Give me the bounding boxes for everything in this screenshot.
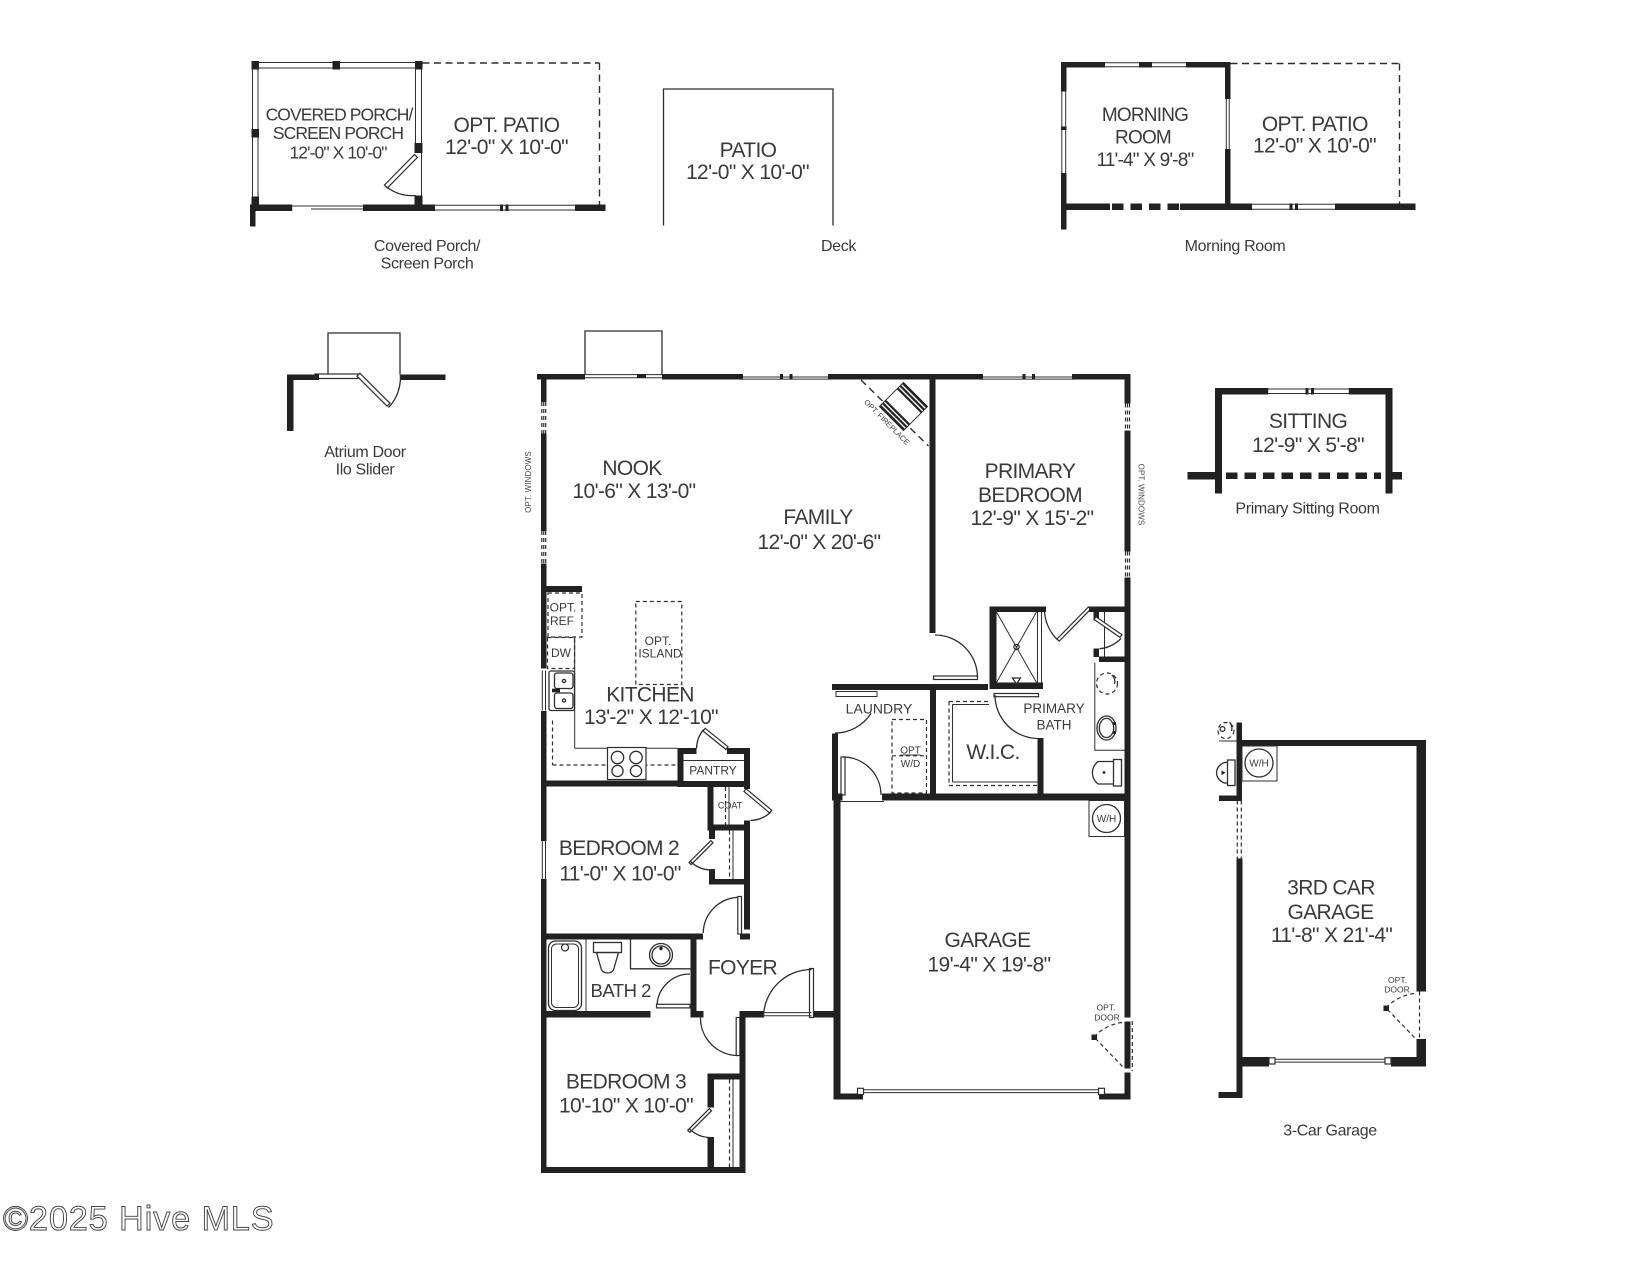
svg-text:LAUNDRY: LAUNDRY (846, 701, 913, 717)
svg-text:12'-0" X 10'-0": 12'-0" X 10'-0" (289, 142, 387, 162)
svg-text:Deck: Deck (821, 238, 857, 255)
svg-text:PANTRY: PANTRY (689, 764, 737, 778)
svg-text:Covered Porch/: Covered Porch/ (374, 238, 481, 255)
svg-text:W/H: W/H (1249, 759, 1268, 770)
svg-text:OPT. WINDOWS: OPT. WINDOWS (524, 451, 533, 513)
svg-text:BEDROOM: BEDROOM (978, 484, 1082, 507)
svg-text:COAT: COAT (718, 801, 743, 811)
svg-text:12'-0" X 10'-0": 12'-0" X 10'-0" (1253, 135, 1376, 158)
svg-text:NOOK: NOOK (602, 457, 662, 480)
svg-text:11'-4" X 9'-8": 11'-4" X 9'-8" (1097, 150, 1194, 171)
svg-text:11'-8" X 21'-4": 11'-8" X 21'-4" (1271, 924, 1393, 947)
svg-text:DW: DW (551, 646, 572, 660)
svg-text:BATH 2: BATH 2 (590, 980, 651, 1001)
svg-text:12'-0" X 10'-0": 12'-0" X 10'-0" (686, 161, 809, 184)
svg-text:KITCHEN: KITCHEN (606, 684, 694, 707)
svg-text:SCREEN PORCH: SCREEN PORCH (273, 123, 403, 143)
svg-text:13'-2" X 12'-10": 13'-2" X 12'-10" (584, 706, 718, 729)
svg-text:Morning Room: Morning Room (1185, 238, 1286, 255)
svg-text:W/D: W/D (901, 759, 920, 770)
svg-text:FAMILY: FAMILY (783, 506, 853, 529)
svg-text:W/H: W/H (1097, 814, 1116, 825)
svg-text:GARAGE: GARAGE (1288, 901, 1375, 924)
svg-text:FOYER: FOYER (708, 957, 778, 980)
svg-text:12'-0" X 10'-0": 12'-0" X 10'-0" (445, 136, 568, 159)
svg-text:DOOR: DOOR (1384, 985, 1410, 995)
svg-text:REF: REF (550, 614, 574, 628)
svg-text:Primary Sitting Room: Primary Sitting Room (1235, 501, 1379, 518)
svg-text:11'-0" X 10'-0": 11'-0" X 10'-0" (559, 863, 681, 886)
svg-text:OPT. PATIO: OPT. PATIO (454, 114, 560, 137)
svg-text:W.I.C.: W.I.C. (966, 741, 1019, 764)
svg-text:PRIMARY: PRIMARY (1023, 701, 1084, 716)
svg-text:ROOM: ROOM (1115, 128, 1171, 149)
svg-text:BEDROOM 3: BEDROOM 3 (566, 1071, 686, 1094)
svg-text:OPT.: OPT. (550, 601, 577, 615)
svg-text:19'-4" X 19'-8": 19'-4" X 19'-8" (928, 954, 1051, 977)
svg-text:PATIO: PATIO (720, 139, 777, 162)
svg-text:OPT: OPT (900, 746, 921, 757)
svg-text:OPT.: OPT. (1097, 1003, 1116, 1013)
svg-text:3-Car Garage: 3-Car Garage (1283, 1123, 1377, 1140)
svg-text:BATH: BATH (1036, 718, 1071, 733)
svg-text:GARAGE: GARAGE (945, 929, 1032, 952)
svg-text:Screen Porch: Screen Porch (381, 256, 474, 273)
svg-text:BEDROOM 2: BEDROOM 2 (559, 837, 679, 860)
svg-text:DOOR: DOOR (1094, 1013, 1120, 1023)
svg-text:12'-0" X 20'-6": 12'-0" X 20'-6" (758, 531, 881, 554)
svg-text:MORNING: MORNING (1102, 105, 1188, 126)
svg-text:12'-9" X 15'-2": 12'-9" X 15'-2" (971, 507, 1094, 530)
svg-text:ISLAND: ISLAND (638, 647, 682, 661)
svg-text:Atrium Door: Atrium Door (324, 444, 407, 461)
svg-text:OPT. PATIO: OPT. PATIO (1262, 113, 1368, 136)
svg-text:©2025 Hive MLS: ©2025 Hive MLS (3, 1200, 275, 1238)
svg-text:SITTING: SITTING (1269, 410, 1347, 433)
svg-text:10'-6" X 13'-0": 10'-6" X 13'-0" (573, 480, 696, 503)
svg-text:Ilo Slider: Ilo Slider (336, 462, 396, 479)
svg-text:3RD CAR: 3RD CAR (1287, 877, 1375, 900)
svg-text:12'-9" X 5'-8": 12'-9" X 5'-8" (1252, 434, 1364, 457)
svg-text:10'-10" X 10'-0": 10'-10" X 10'-0" (559, 1095, 693, 1118)
svg-text:OPT.: OPT. (1388, 975, 1407, 985)
svg-text:OPT. WINDOWS: OPT. WINDOWS (1137, 464, 1146, 526)
svg-text:COVERED PORCH/: COVERED PORCH/ (266, 105, 414, 125)
svg-text:PRIMARY: PRIMARY (985, 460, 1076, 483)
